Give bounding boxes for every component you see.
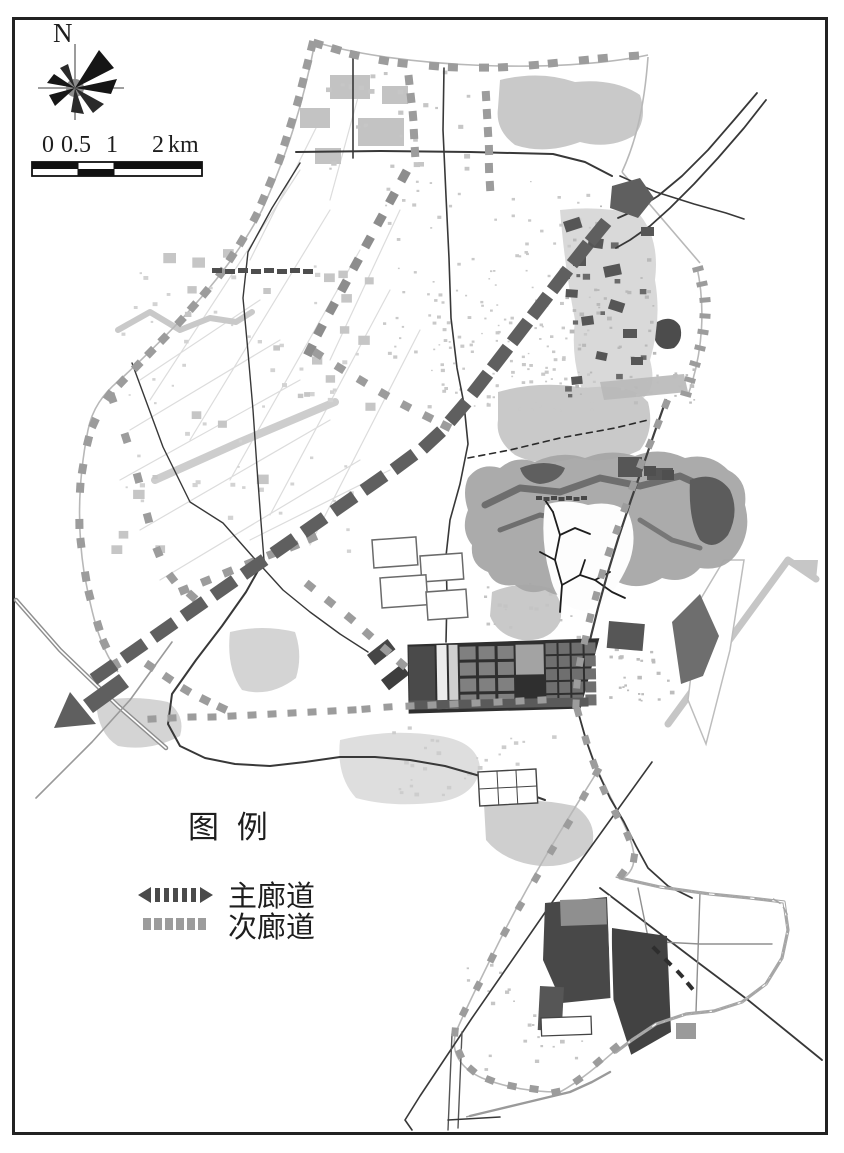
speckle-dot bbox=[399, 788, 402, 790]
speckle-dot bbox=[433, 281, 435, 283]
corridor-dash bbox=[121, 432, 132, 444]
corridor-dash bbox=[81, 571, 91, 582]
speckle-dot bbox=[441, 363, 445, 366]
speckle-dot bbox=[126, 486, 128, 488]
speckle-dot bbox=[535, 607, 539, 610]
speckle-dot bbox=[471, 351, 474, 354]
legend-main-arrow-right bbox=[200, 887, 213, 903]
dark-parcel bbox=[571, 376, 583, 385]
corridor-dash bbox=[227, 712, 236, 719]
corridor-dash bbox=[409, 111, 418, 122]
tiny-map-label-mark bbox=[536, 496, 542, 500]
speckle-dot bbox=[565, 338, 567, 340]
speckle-dot bbox=[584, 333, 587, 336]
speckle-dot bbox=[590, 409, 593, 411]
speckle-dot bbox=[489, 1055, 492, 1058]
speckle-dot bbox=[690, 384, 695, 388]
speckle-dot bbox=[431, 370, 433, 371]
legend-secondary-bar bbox=[143, 918, 151, 930]
corridor-dash bbox=[286, 117, 297, 129]
map-shape bbox=[479, 662, 495, 675]
speckle-dot bbox=[496, 385, 499, 388]
corridor-dash bbox=[466, 1064, 477, 1075]
speckle-dot bbox=[511, 317, 514, 320]
speckle-dot bbox=[460, 345, 464, 348]
speckle-dot bbox=[447, 786, 451, 790]
map-shape bbox=[585, 668, 596, 679]
speckle-dot bbox=[394, 346, 396, 348]
main-corridor-dash bbox=[330, 491, 359, 517]
speckle-dot bbox=[616, 374, 623, 379]
corridor-dash bbox=[653, 419, 663, 430]
corridor-dash bbox=[144, 346, 157, 359]
tiny-map-label-mark bbox=[277, 269, 287, 274]
speckle-dot bbox=[154, 402, 157, 404]
dark-parcel bbox=[581, 315, 594, 326]
speckle-dot bbox=[550, 335, 553, 338]
speckle-dot bbox=[347, 550, 351, 553]
speckle-dot bbox=[282, 383, 287, 387]
dark-parcel bbox=[655, 319, 681, 349]
speckle-dot bbox=[210, 287, 213, 290]
speckle-dot bbox=[300, 368, 304, 371]
speckle-dot bbox=[487, 586, 490, 588]
speckle-dot bbox=[398, 268, 400, 269]
main-corridor-dash bbox=[390, 449, 419, 475]
legend-symbol-secondary-corridor bbox=[143, 918, 206, 930]
speckle-dot bbox=[640, 289, 647, 294]
corridor-dash bbox=[405, 702, 414, 709]
road-block-outline bbox=[372, 537, 418, 568]
legend-label-main-corridor: 主廊道 bbox=[228, 880, 315, 913]
speckle-dot bbox=[290, 483, 294, 486]
road-block-outline bbox=[380, 575, 428, 608]
corridor-dash bbox=[324, 596, 337, 608]
speckle-dot bbox=[554, 358, 558, 361]
planning-boundary bbox=[315, 42, 648, 66]
corridor-dash bbox=[199, 694, 212, 706]
speckle-dot bbox=[133, 490, 145, 499]
speckle-dot bbox=[371, 74, 376, 78]
speckle-dot bbox=[546, 604, 549, 607]
speckle-dot bbox=[270, 368, 275, 372]
corridor-dash bbox=[307, 708, 316, 715]
corridor-dash bbox=[75, 519, 83, 529]
speckle-dot bbox=[331, 161, 336, 165]
speckle-dot bbox=[464, 154, 470, 159]
corridor-dash bbox=[83, 435, 93, 447]
speckle-dot bbox=[511, 376, 513, 378]
corridor-dash bbox=[327, 707, 336, 714]
tiny-map-label-mark bbox=[574, 497, 580, 501]
speckle-dot bbox=[444, 387, 448, 390]
corridor-dash bbox=[455, 1048, 465, 1059]
speckle-dot bbox=[326, 375, 335, 383]
speckle-dot bbox=[356, 125, 360, 128]
speckle-dot bbox=[324, 273, 335, 282]
speckle-dot bbox=[273, 345, 280, 350]
speckle-dot bbox=[693, 399, 695, 401]
speckle-dot bbox=[434, 299, 437, 302]
speckle-dot bbox=[607, 317, 612, 321]
speckle-dot bbox=[571, 403, 573, 405]
speckle-dot bbox=[400, 791, 404, 794]
speckle-dot bbox=[262, 405, 265, 407]
road bbox=[155, 402, 335, 480]
corridor-dash bbox=[592, 1056, 603, 1067]
speckle-dot bbox=[650, 651, 653, 653]
speckle-dot bbox=[548, 275, 551, 277]
tiny-map-label-mark bbox=[303, 269, 313, 274]
corridor-dash bbox=[410, 129, 419, 139]
medium-parcel bbox=[676, 1023, 696, 1039]
speckle-dot bbox=[140, 483, 145, 487]
corridor-dash bbox=[427, 701, 436, 708]
speckle-dot bbox=[436, 740, 439, 743]
speckle-dot bbox=[203, 422, 207, 425]
speckle-dot bbox=[280, 344, 284, 348]
speckle-dot bbox=[458, 336, 462, 339]
speckle-dot bbox=[390, 165, 394, 168]
speckle-dot bbox=[534, 327, 537, 329]
speckle-dot bbox=[585, 388, 587, 390]
speckle-dot bbox=[551, 378, 553, 380]
corridor-dash bbox=[76, 482, 85, 492]
speckle-dot bbox=[559, 382, 562, 384]
speckle-dot bbox=[658, 698, 661, 700]
loop-hatch bbox=[748, 991, 756, 998]
speckle-dot bbox=[152, 378, 155, 381]
speckle-dot bbox=[670, 691, 675, 695]
speckle-dot bbox=[442, 794, 445, 796]
speckle-dot bbox=[533, 1014, 536, 1017]
corridor-dash bbox=[280, 135, 291, 147]
legend-main-bar bbox=[191, 888, 196, 902]
speckle-dot bbox=[513, 1001, 515, 1003]
speckle-dot bbox=[562, 356, 566, 359]
speckle-dot bbox=[248, 335, 251, 338]
speckle-dot bbox=[532, 287, 534, 289]
corridor-dash bbox=[397, 59, 408, 68]
main-corridor-dash bbox=[360, 470, 389, 496]
corridor-dash bbox=[485, 1075, 496, 1085]
speckle-dot bbox=[491, 1002, 495, 1006]
legend-title: 图 例 bbox=[188, 810, 273, 845]
corridor-dash bbox=[586, 613, 595, 623]
speckle-dot bbox=[604, 297, 607, 300]
corridor-dash bbox=[629, 52, 640, 61]
speckle-dot bbox=[499, 972, 502, 974]
speckle-dot bbox=[437, 751, 442, 755]
speckle-dot bbox=[484, 596, 487, 599]
speckle-dot bbox=[365, 277, 374, 284]
speckle-dot bbox=[237, 466, 239, 468]
speckle-dot bbox=[591, 402, 594, 404]
speckle-dot bbox=[424, 747, 427, 749]
speckle-dot bbox=[575, 385, 579, 388]
map-shape bbox=[559, 682, 570, 693]
corridor-dash bbox=[133, 472, 143, 484]
compass-wedge-sw bbox=[49, 88, 75, 106]
tiny-map-label-mark bbox=[251, 269, 261, 274]
corridor-dash bbox=[645, 438, 655, 449]
speckle-dot bbox=[503, 605, 507, 608]
scale-seg bbox=[114, 162, 202, 169]
speckle-dot bbox=[340, 326, 349, 334]
corridor-dash bbox=[144, 660, 157, 672]
corridor-dash bbox=[473, 980, 483, 991]
speckle-dot bbox=[279, 512, 283, 515]
speckle-dot bbox=[667, 680, 670, 682]
corridor-dash bbox=[302, 59, 312, 71]
corridor-dash bbox=[200, 575, 212, 586]
speckle-dot bbox=[494, 219, 497, 221]
speckle-dot bbox=[228, 516, 233, 520]
speckle-dot bbox=[417, 190, 420, 192]
speckle-dot bbox=[408, 726, 412, 729]
speckle-dot bbox=[496, 304, 498, 306]
speckle-dot bbox=[230, 483, 235, 487]
road bbox=[443, 68, 464, 404]
speckle-dot bbox=[449, 347, 452, 349]
speckle-dot bbox=[562, 327, 565, 330]
speckle-dot bbox=[641, 700, 643, 702]
speckle-dot bbox=[648, 391, 652, 394]
speckle-dot bbox=[192, 411, 202, 419]
speckle-dot bbox=[560, 302, 564, 305]
legend-secondary-bar bbox=[154, 918, 162, 930]
speckle-dot bbox=[640, 277, 642, 279]
speckle-dot bbox=[561, 386, 565, 389]
corridor-dash bbox=[581, 735, 590, 746]
boundary-tooth bbox=[696, 280, 708, 287]
speckle-dot bbox=[457, 263, 461, 266]
map-shape bbox=[559, 656, 570, 667]
corridor-dash bbox=[429, 62, 440, 71]
speckle-dot bbox=[412, 203, 416, 206]
road bbox=[190, 210, 330, 440]
speckle-dot bbox=[184, 340, 189, 344]
speckle-dot bbox=[505, 609, 507, 611]
speckle-dot bbox=[675, 372, 678, 374]
legend-main-bar bbox=[164, 888, 169, 902]
speckle-dot bbox=[263, 288, 271, 294]
speckle-dot bbox=[522, 741, 525, 743]
corridor-dash bbox=[485, 145, 493, 155]
speckle-dot bbox=[187, 286, 196, 293]
corridor-dash bbox=[330, 44, 342, 55]
dark-dash bbox=[686, 981, 695, 990]
corridor-dash bbox=[404, 75, 413, 86]
corridor-dash bbox=[362, 628, 375, 641]
speckle-dot bbox=[565, 386, 572, 391]
speckle-dot bbox=[568, 394, 572, 397]
legend-secondary-bar bbox=[198, 918, 206, 930]
speckle-dot bbox=[384, 72, 388, 75]
speckle-dot bbox=[514, 741, 518, 745]
legend-main-bar bbox=[173, 888, 178, 902]
speckle-dot bbox=[122, 333, 126, 336]
medium-parcel bbox=[560, 898, 607, 926]
speckle-dot bbox=[587, 373, 590, 375]
fabric-patch bbox=[484, 800, 593, 866]
corridor-dash bbox=[485, 163, 493, 173]
speckle-dot bbox=[545, 367, 548, 369]
speckle-dot bbox=[499, 754, 501, 756]
speckle-dot bbox=[638, 693, 640, 695]
speckle-dot bbox=[600, 311, 605, 315]
speckle-dot bbox=[341, 294, 352, 303]
speckle-dot bbox=[552, 735, 557, 739]
speckle-dot bbox=[498, 604, 502, 607]
speckle-dot bbox=[576, 274, 580, 277]
speckle-dot bbox=[487, 395, 491, 398]
dark-parcel bbox=[607, 621, 645, 651]
gridded-white-block bbox=[478, 769, 538, 806]
tiny-map-label-mark bbox=[551, 496, 557, 500]
speckle-dot bbox=[634, 401, 638, 404]
speckle-dot bbox=[515, 254, 519, 257]
speckle-dot bbox=[528, 1024, 532, 1027]
speckle-dot bbox=[559, 619, 562, 621]
dark-parcel bbox=[367, 639, 395, 665]
corridor-dash bbox=[451, 1027, 459, 1037]
speckle-dot bbox=[686, 374, 689, 376]
speckle-dot bbox=[630, 376, 633, 378]
speckle-dot bbox=[583, 274, 590, 280]
speckle-dot bbox=[673, 374, 678, 378]
tiny-map-label-mark bbox=[581, 496, 587, 500]
speckle-dot bbox=[593, 381, 596, 383]
speckle-dot bbox=[528, 353, 530, 354]
speckle-dot bbox=[309, 392, 314, 396]
speckle-dot bbox=[570, 330, 575, 334]
main-corridor-dash bbox=[445, 398, 472, 426]
corridor-dash bbox=[493, 698, 502, 705]
fabric-patch bbox=[358, 118, 404, 146]
corridor-dash bbox=[385, 191, 399, 206]
speckle-dot bbox=[622, 686, 624, 688]
speckle-dot bbox=[636, 394, 640, 397]
speckle-dot bbox=[396, 317, 399, 319]
speckle-dot bbox=[470, 344, 473, 347]
speckle-dot bbox=[472, 258, 475, 260]
speckle-dot bbox=[540, 230, 543, 233]
map-shape bbox=[546, 669, 557, 680]
loop-hatch bbox=[787, 924, 789, 933]
corridor-dash bbox=[479, 64, 489, 72]
map-shape bbox=[460, 662, 476, 675]
speckle-dot bbox=[598, 307, 600, 309]
corridor-dash bbox=[378, 56, 389, 66]
main-corridor-dash bbox=[527, 292, 553, 321]
speckle-dot bbox=[383, 322, 386, 325]
map-shape bbox=[515, 644, 544, 674]
white-block bbox=[541, 1016, 592, 1036]
speckle-dot bbox=[404, 761, 409, 765]
speckle-dot bbox=[487, 623, 491, 626]
speckle-dot bbox=[527, 368, 529, 370]
speckle-dot bbox=[485, 1068, 489, 1071]
legend-main-bar bbox=[182, 888, 187, 902]
speckle-dot bbox=[689, 402, 692, 404]
speckle-dot bbox=[467, 95, 471, 98]
speckle-dot bbox=[541, 373, 545, 376]
mountain-valley bbox=[543, 502, 633, 611]
speckle-dot bbox=[418, 162, 424, 167]
speckle-dot bbox=[579, 344, 582, 346]
fabric-patch bbox=[498, 75, 643, 149]
speckle-dot bbox=[474, 405, 476, 406]
map-shape bbox=[436, 645, 447, 709]
corridor-dash bbox=[307, 40, 317, 52]
tiny-map-label-mark bbox=[212, 268, 222, 273]
main-corridor-dash bbox=[467, 370, 493, 399]
dark-parcel bbox=[623, 329, 637, 338]
speckle-dot bbox=[522, 356, 525, 359]
scale-unit-label: km bbox=[168, 132, 199, 158]
speckle-dot bbox=[487, 403, 489, 405]
corridor-dash bbox=[422, 411, 435, 423]
speckle-dot bbox=[480, 301, 483, 303]
speckle-dot bbox=[560, 410, 562, 412]
corridor-dash bbox=[257, 194, 268, 206]
speckle-dot bbox=[539, 405, 542, 407]
scale-label-1: 1 bbox=[106, 132, 118, 158]
speckle-dot bbox=[589, 227, 591, 229]
speckle-dot bbox=[588, 400, 591, 402]
speckle-dot bbox=[609, 696, 612, 699]
speckle-dot bbox=[365, 403, 375, 411]
road-block-outline bbox=[426, 589, 468, 620]
speckle-dot bbox=[182, 364, 186, 367]
speckle-dot bbox=[368, 89, 374, 94]
corridor-dash bbox=[356, 375, 369, 387]
corridor-dash bbox=[337, 279, 351, 294]
road bbox=[296, 151, 612, 176]
speckle-dot bbox=[326, 88, 332, 93]
speckle-dot bbox=[435, 107, 438, 109]
corridor-dash bbox=[573, 707, 582, 718]
speckle-dot bbox=[400, 135, 403, 137]
speckle-dot bbox=[647, 381, 649, 383]
map-shape bbox=[448, 645, 458, 709]
speckle-dot bbox=[493, 270, 495, 272]
speckle-dot bbox=[449, 341, 451, 343]
legend-symbol-main-corridor bbox=[138, 887, 213, 903]
speckle-dot bbox=[410, 764, 414, 767]
speckle-dot bbox=[653, 352, 656, 355]
speckle-dot bbox=[518, 408, 522, 411]
speckle-dot bbox=[552, 351, 555, 354]
speckle-dot bbox=[472, 341, 475, 343]
corridor-dash bbox=[265, 176, 276, 188]
corridor-dash bbox=[293, 95, 303, 107]
legend-secondary-bar bbox=[176, 918, 184, 930]
speckle-dot bbox=[185, 312, 192, 317]
dark-polygon-south bbox=[611, 928, 671, 1056]
speckle-dot bbox=[185, 432, 190, 436]
speckle-dot bbox=[516, 763, 520, 766]
speckle-dot bbox=[656, 375, 658, 377]
speckle-dot bbox=[433, 349, 435, 351]
speckle-dot bbox=[495, 284, 497, 286]
legend-secondary-bar bbox=[187, 918, 195, 930]
speckle-dot bbox=[172, 385, 174, 387]
speckle-dot bbox=[151, 321, 154, 323]
corridor-dash bbox=[131, 359, 144, 372]
map-shape bbox=[545, 643, 556, 654]
